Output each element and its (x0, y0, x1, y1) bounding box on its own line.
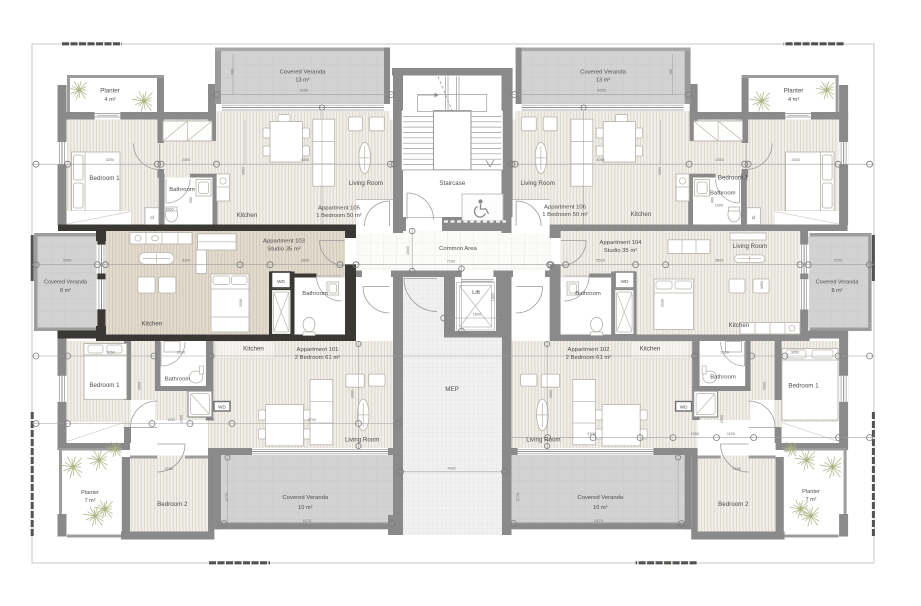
svg-text:2 Bedroom 61 m²: 2 Bedroom 61 m² (295, 355, 341, 361)
svg-text:780: 780 (669, 69, 673, 75)
svg-text:Common Area: Common Area (439, 246, 477, 252)
svg-text:Appartment 106: Appartment 106 (544, 205, 587, 211)
svg-text:1190: 1190 (167, 418, 175, 422)
svg-text:7 m²: 7 m² (806, 497, 817, 503)
svg-text:3200: 3200 (791, 158, 799, 162)
svg-text:900: 900 (711, 197, 715, 203)
svg-text:6170: 6170 (303, 519, 311, 523)
svg-text:Appartment 105: Appartment 105 (318, 206, 361, 212)
svg-text:cl: cl (752, 215, 755, 220)
svg-text:Lift: Lift (472, 290, 480, 296)
svg-text:Bedroom 1: Bedroom 1 (788, 383, 819, 390)
svg-text:3700: 3700 (587, 432, 595, 436)
svg-text:2770: 2770 (516, 493, 520, 501)
svg-text:8 m²: 8 m² (832, 288, 843, 294)
svg-text:Appartment 102: Appartment 102 (568, 347, 610, 353)
svg-text:5520: 5520 (596, 259, 604, 263)
svg-text:7 m²: 7 m² (85, 498, 96, 504)
svg-text:3700: 3700 (308, 418, 316, 422)
svg-text:Bathroom: Bathroom (165, 377, 191, 383)
svg-text:3050: 3050 (760, 281, 764, 289)
svg-text:MEP: MEP (445, 386, 458, 393)
svg-text:1150: 1150 (727, 432, 735, 436)
svg-text:2000: 2000 (720, 415, 724, 423)
svg-text:Planter: Planter (802, 489, 820, 495)
svg-text:Kitchen: Kitchen (729, 322, 750, 329)
svg-text:Staircase: Staircase (439, 180, 465, 187)
svg-text:1550: 1550 (691, 432, 699, 436)
svg-text:Covered Veranda: Covered Veranda (577, 495, 624, 501)
svg-text:2300: 2300 (182, 158, 190, 162)
svg-text:Covered Veranda: Covered Veranda (816, 280, 860, 286)
svg-text:1 Bedroom 50 m²: 1 Bedroom 50 m² (542, 212, 588, 218)
svg-text:10 m²: 10 m² (298, 505, 312, 511)
svg-text:2150: 2150 (165, 467, 173, 471)
svg-text:WD: WD (621, 279, 629, 284)
svg-text:Bedroom 1: Bedroom 1 (718, 175, 749, 182)
svg-text:WD: WD (218, 405, 226, 410)
svg-text:Kitchen: Kitchen (142, 321, 163, 328)
svg-text:8 m²: 8 m² (60, 288, 71, 294)
svg-text:7030: 7030 (447, 467, 455, 471)
svg-text:5505: 5505 (715, 259, 723, 263)
svg-text:13 m²: 13 m² (596, 78, 610, 84)
svg-text:2600: 2600 (301, 259, 309, 263)
svg-text:6250: 6250 (300, 89, 308, 93)
svg-text:Kitchen: Kitchen (631, 211, 652, 218)
svg-text:Planter: Planter (100, 88, 120, 95)
svg-text:2770: 2770 (225, 493, 229, 501)
svg-text:3000: 3000 (137, 382, 141, 390)
svg-text:Bedroom 2: Bedroom 2 (157, 501, 188, 508)
svg-text:780: 780 (231, 69, 235, 75)
svg-text:1500: 1500 (715, 204, 723, 208)
svg-text:Covered Veranda: Covered Veranda (282, 495, 329, 501)
svg-text:2300: 2300 (720, 351, 728, 355)
svg-text:2300: 2300 (715, 158, 723, 162)
svg-text:Covered Veranda: Covered Veranda (580, 70, 627, 76)
svg-text:5100: 5100 (182, 259, 190, 263)
svg-text:6170: 6170 (594, 519, 602, 523)
svg-text:3000: 3000 (351, 390, 355, 398)
svg-text:3000: 3000 (762, 382, 766, 390)
svg-text:Bathroom: Bathroom (710, 191, 736, 197)
svg-text:Living Room: Living Room (345, 436, 379, 443)
svg-text:Bathroom: Bathroom (302, 291, 328, 297)
svg-text:10 m²: 10 m² (593, 505, 607, 511)
svg-text:1600: 1600 (473, 313, 481, 317)
svg-text:Bathroom: Bathroom (575, 291, 601, 297)
svg-text:3050: 3050 (658, 167, 662, 175)
svg-text:2030: 2030 (239, 299, 243, 307)
svg-text:1500: 1500 (165, 208, 173, 212)
svg-text:Bathroom: Bathroom (169, 187, 195, 193)
svg-text:3050: 3050 (791, 351, 799, 355)
svg-text:2030: 2030 (661, 299, 665, 307)
svg-text:Planter: Planter (81, 490, 99, 496)
svg-text:2300: 2300 (177, 351, 185, 355)
svg-text:Living Room: Living Room (520, 180, 554, 187)
svg-text:Covered Veranda: Covered Veranda (280, 70, 327, 76)
svg-text:Appartment 103: Appartment 103 (263, 239, 306, 245)
svg-text:4 m²: 4 m² (104, 97, 115, 103)
svg-text:2000: 2000 (179, 415, 183, 423)
svg-text:Bedroom 2: Bedroom 2 (718, 501, 749, 508)
svg-text:7230: 7230 (447, 259, 455, 263)
svg-text:WD: WD (680, 405, 688, 410)
svg-text:1500: 1500 (406, 246, 410, 254)
svg-text:cl: cl (150, 215, 153, 220)
svg-text:3050: 3050 (242, 167, 246, 175)
svg-text:4 m²: 4 m² (788, 97, 799, 103)
svg-text:2000: 2000 (63, 259, 71, 263)
svg-text:Planter: Planter (784, 88, 804, 95)
svg-text:1500: 1500 (491, 293, 495, 301)
svg-text:Appartment 104: Appartment 104 (600, 240, 643, 246)
svg-text:4050: 4050 (301, 158, 309, 162)
svg-text:2150: 2150 (732, 467, 740, 471)
svg-text:2 Bedroom 61 m²: 2 Bedroom 61 m² (566, 355, 612, 361)
svg-text:2700: 2700 (834, 259, 842, 263)
svg-text:4050: 4050 (596, 158, 604, 162)
svg-text:Kitchen: Kitchen (243, 346, 264, 353)
svg-text:Studio 35 m²: Studio 35 m² (267, 247, 300, 253)
svg-text:WD: WD (277, 279, 285, 284)
svg-text:3200: 3200 (106, 158, 114, 162)
svg-text:1590: 1590 (206, 418, 214, 422)
svg-text:Studio 35 m²: Studio 35 m² (604, 248, 637, 254)
svg-text:Bathroom: Bathroom (710, 375, 736, 381)
svg-text:13 m²: 13 m² (295, 78, 309, 84)
svg-text:Living Room: Living Room (733, 243, 767, 250)
svg-text:Bedroom 1: Bedroom 1 (89, 175, 120, 182)
svg-text:3000: 3000 (549, 390, 553, 398)
svg-text:Appartment 101: Appartment 101 (297, 347, 339, 353)
svg-text:Living Room: Living Room (526, 436, 560, 443)
svg-text:3050: 3050 (106, 351, 114, 355)
svg-text:Kitchen: Kitchen (640, 346, 661, 353)
svg-text:1 Bedroom 50 m²: 1 Bedroom 50 m² (316, 213, 362, 219)
svg-text:Living Room: Living Room (349, 180, 383, 187)
svg-text:Bedroom 1: Bedroom 1 (89, 382, 120, 389)
svg-text:Covered Veranda: Covered Veranda (44, 280, 88, 286)
svg-text:Kitchen: Kitchen (237, 212, 258, 219)
svg-text:6250: 6250 (597, 89, 605, 93)
svg-text:900: 900 (189, 197, 193, 203)
